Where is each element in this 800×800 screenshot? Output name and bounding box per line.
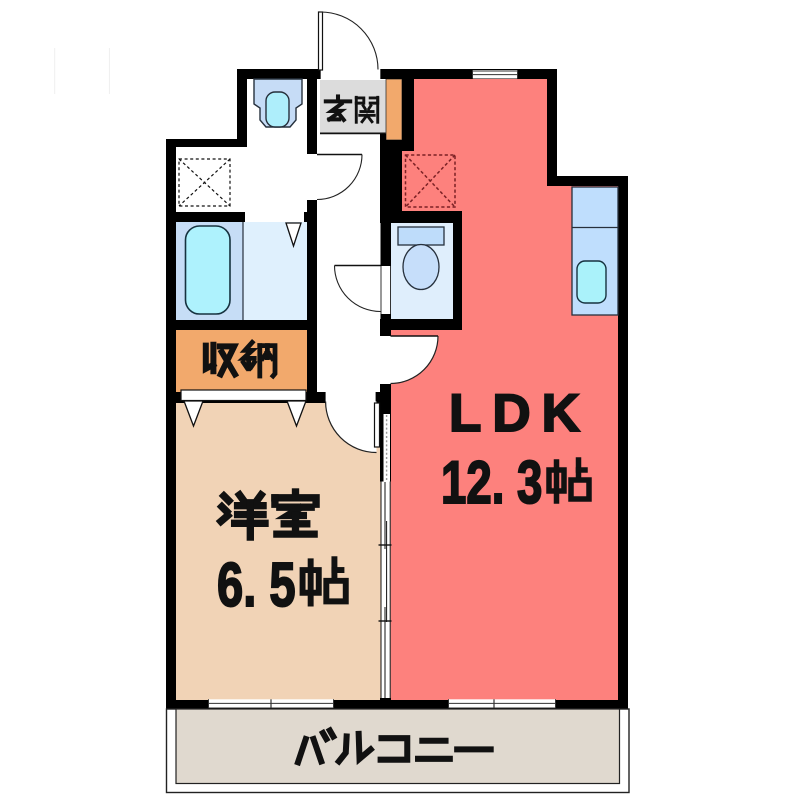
svg-text:LDK: LDK bbox=[449, 384, 591, 443]
svg-text:6. 5: 6. 5 bbox=[217, 550, 296, 620]
svg-text:12. 3: 12. 3 bbox=[441, 450, 542, 516]
